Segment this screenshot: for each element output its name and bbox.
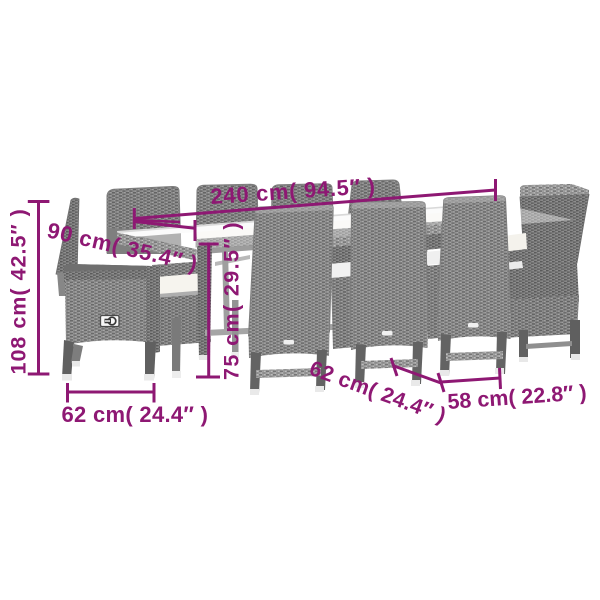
- svg-text:108 cm( 42.5″ ): 108 cm( 42.5″ ): [7, 208, 31, 374]
- svg-text:75 cm( 29.5″ ): 75 cm( 29.5″ ): [220, 221, 244, 380]
- svg-text:62 cm( 24.4″ ): 62 cm( 24.4″ ): [62, 402, 209, 427]
